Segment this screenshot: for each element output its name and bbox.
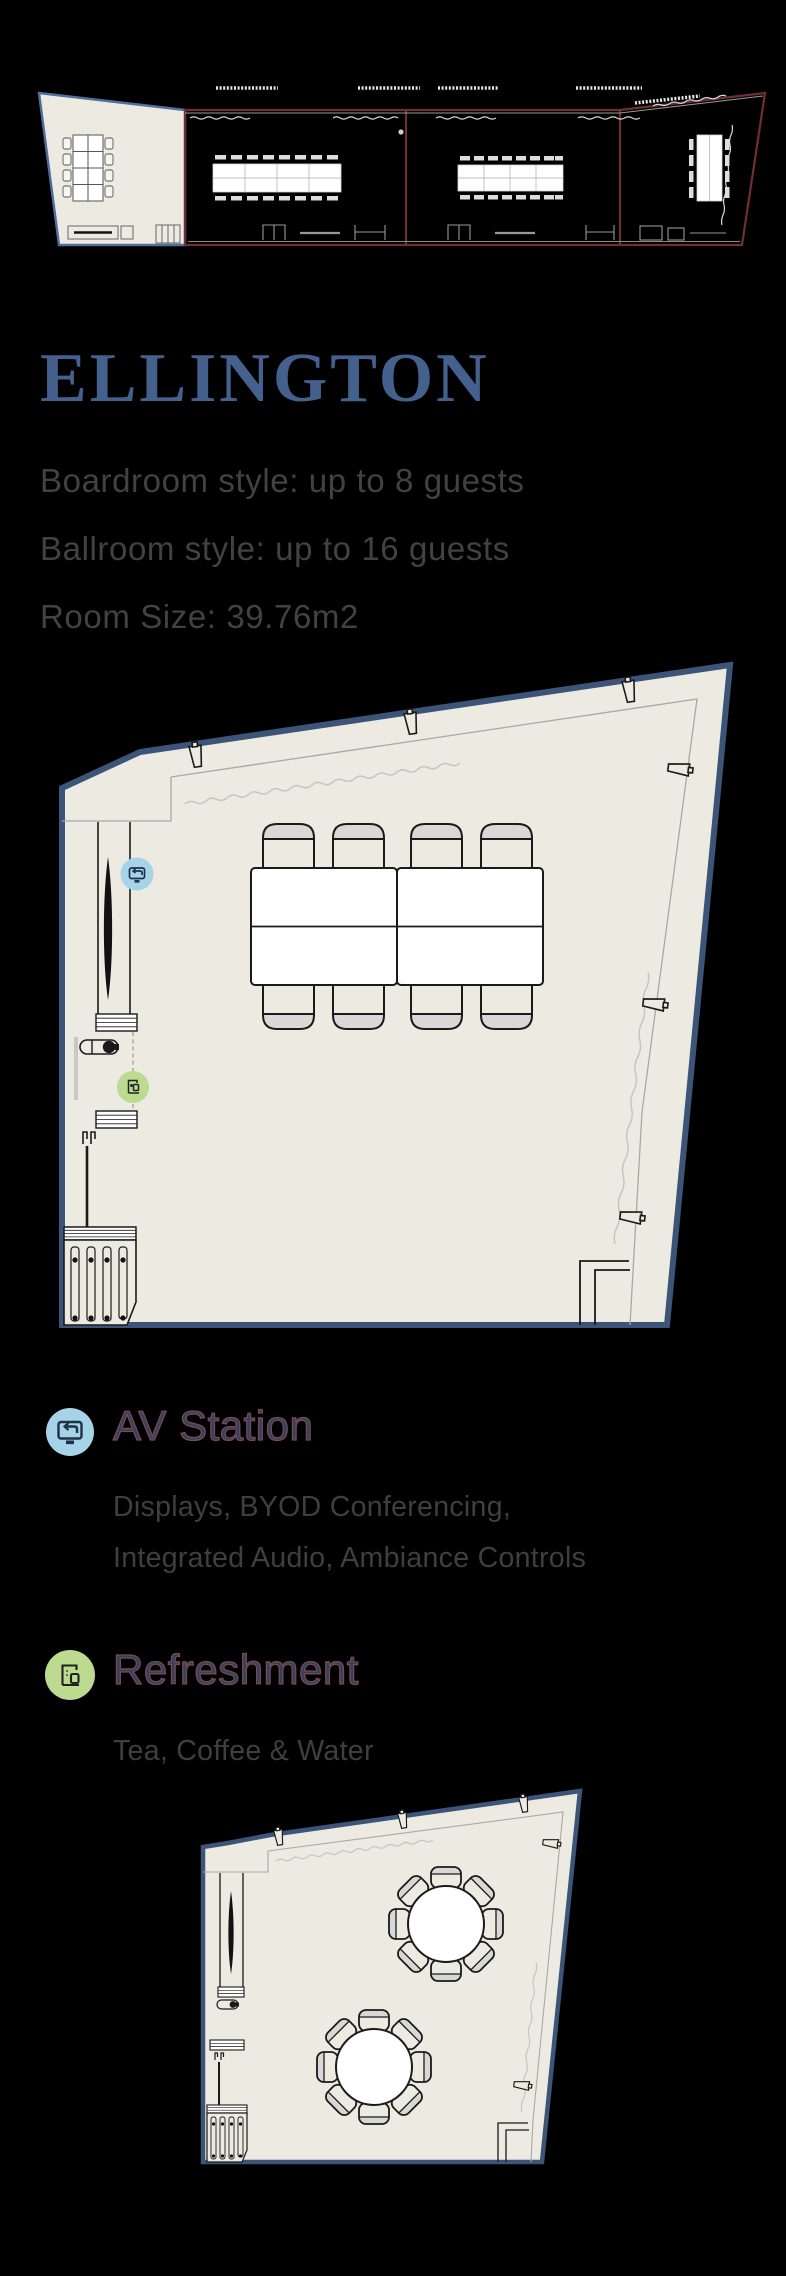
boardroom-table (251, 868, 543, 985)
refreshment-legend-icon-badge (45, 1650, 95, 1700)
spec-room-size: Room Size: 39.76m2 (40, 597, 359, 637)
overview-room-ellington-highlighted (39, 93, 185, 245)
spec-boardroom-capacity: Boardroom style: up to 8 guests (40, 461, 525, 501)
overview-dot (398, 129, 403, 134)
overview-other-rooms (185, 93, 765, 245)
radiator-cabinet (64, 1227, 136, 1325)
overview-table-room3 (458, 156, 563, 200)
coffee-machine-icon (45, 1650, 95, 1700)
room-outline (62, 665, 730, 1325)
round-table-top (408, 1886, 484, 1962)
ballroom-floor-plan (198, 1756, 588, 2168)
page-title: ELLINGTON (40, 341, 490, 417)
av-station-marker (121, 858, 154, 891)
dimension-ticks (216, 88, 700, 103)
chair (431, 1867, 461, 1888)
spec-ballroom-capacity: Ballroom style: up to 16 guests (40, 529, 510, 569)
chair (410, 2052, 431, 2082)
radiator-cabinet (207, 2105, 247, 2162)
legend-title-refreshment: Refreshment (113, 1646, 359, 1694)
overview-table-room4 (689, 135, 730, 201)
room-outline (203, 1791, 580, 2162)
round-table-2 (317, 2010, 431, 2124)
chair (359, 2010, 389, 2031)
legend-desc-av-line1: Displays, BYOD Conferencing, (113, 1482, 586, 1533)
legend-title-av-station: AV Station (113, 1402, 313, 1450)
chair (431, 1960, 461, 1981)
boardroom-floor-plan (30, 632, 742, 1342)
chair (359, 2103, 389, 2124)
chair (317, 2052, 338, 2082)
legend-desc-av-line2: Integrated Audio, Ambiance Controls (113, 1533, 586, 1584)
overview-dark-room-furniture (263, 225, 726, 240)
refreshment-marker (117, 1071, 149, 1103)
round-table-1 (389, 1867, 503, 1981)
av-station-legend-icon-badge (46, 1408, 94, 1456)
building-overview-plan (28, 85, 768, 253)
room-spec-sheet: { "window": { "width": 786, "height": 22… (0, 0, 786, 2276)
overview-table-room2 (213, 155, 341, 201)
coffee-machine-plan-symbol (217, 2000, 239, 2009)
display-cast-icon (46, 1408, 94, 1456)
round-table-top (336, 2029, 412, 2105)
chair (482, 1909, 503, 1939)
chair (389, 1909, 410, 1939)
overview-boardroom-table (73, 135, 103, 201)
